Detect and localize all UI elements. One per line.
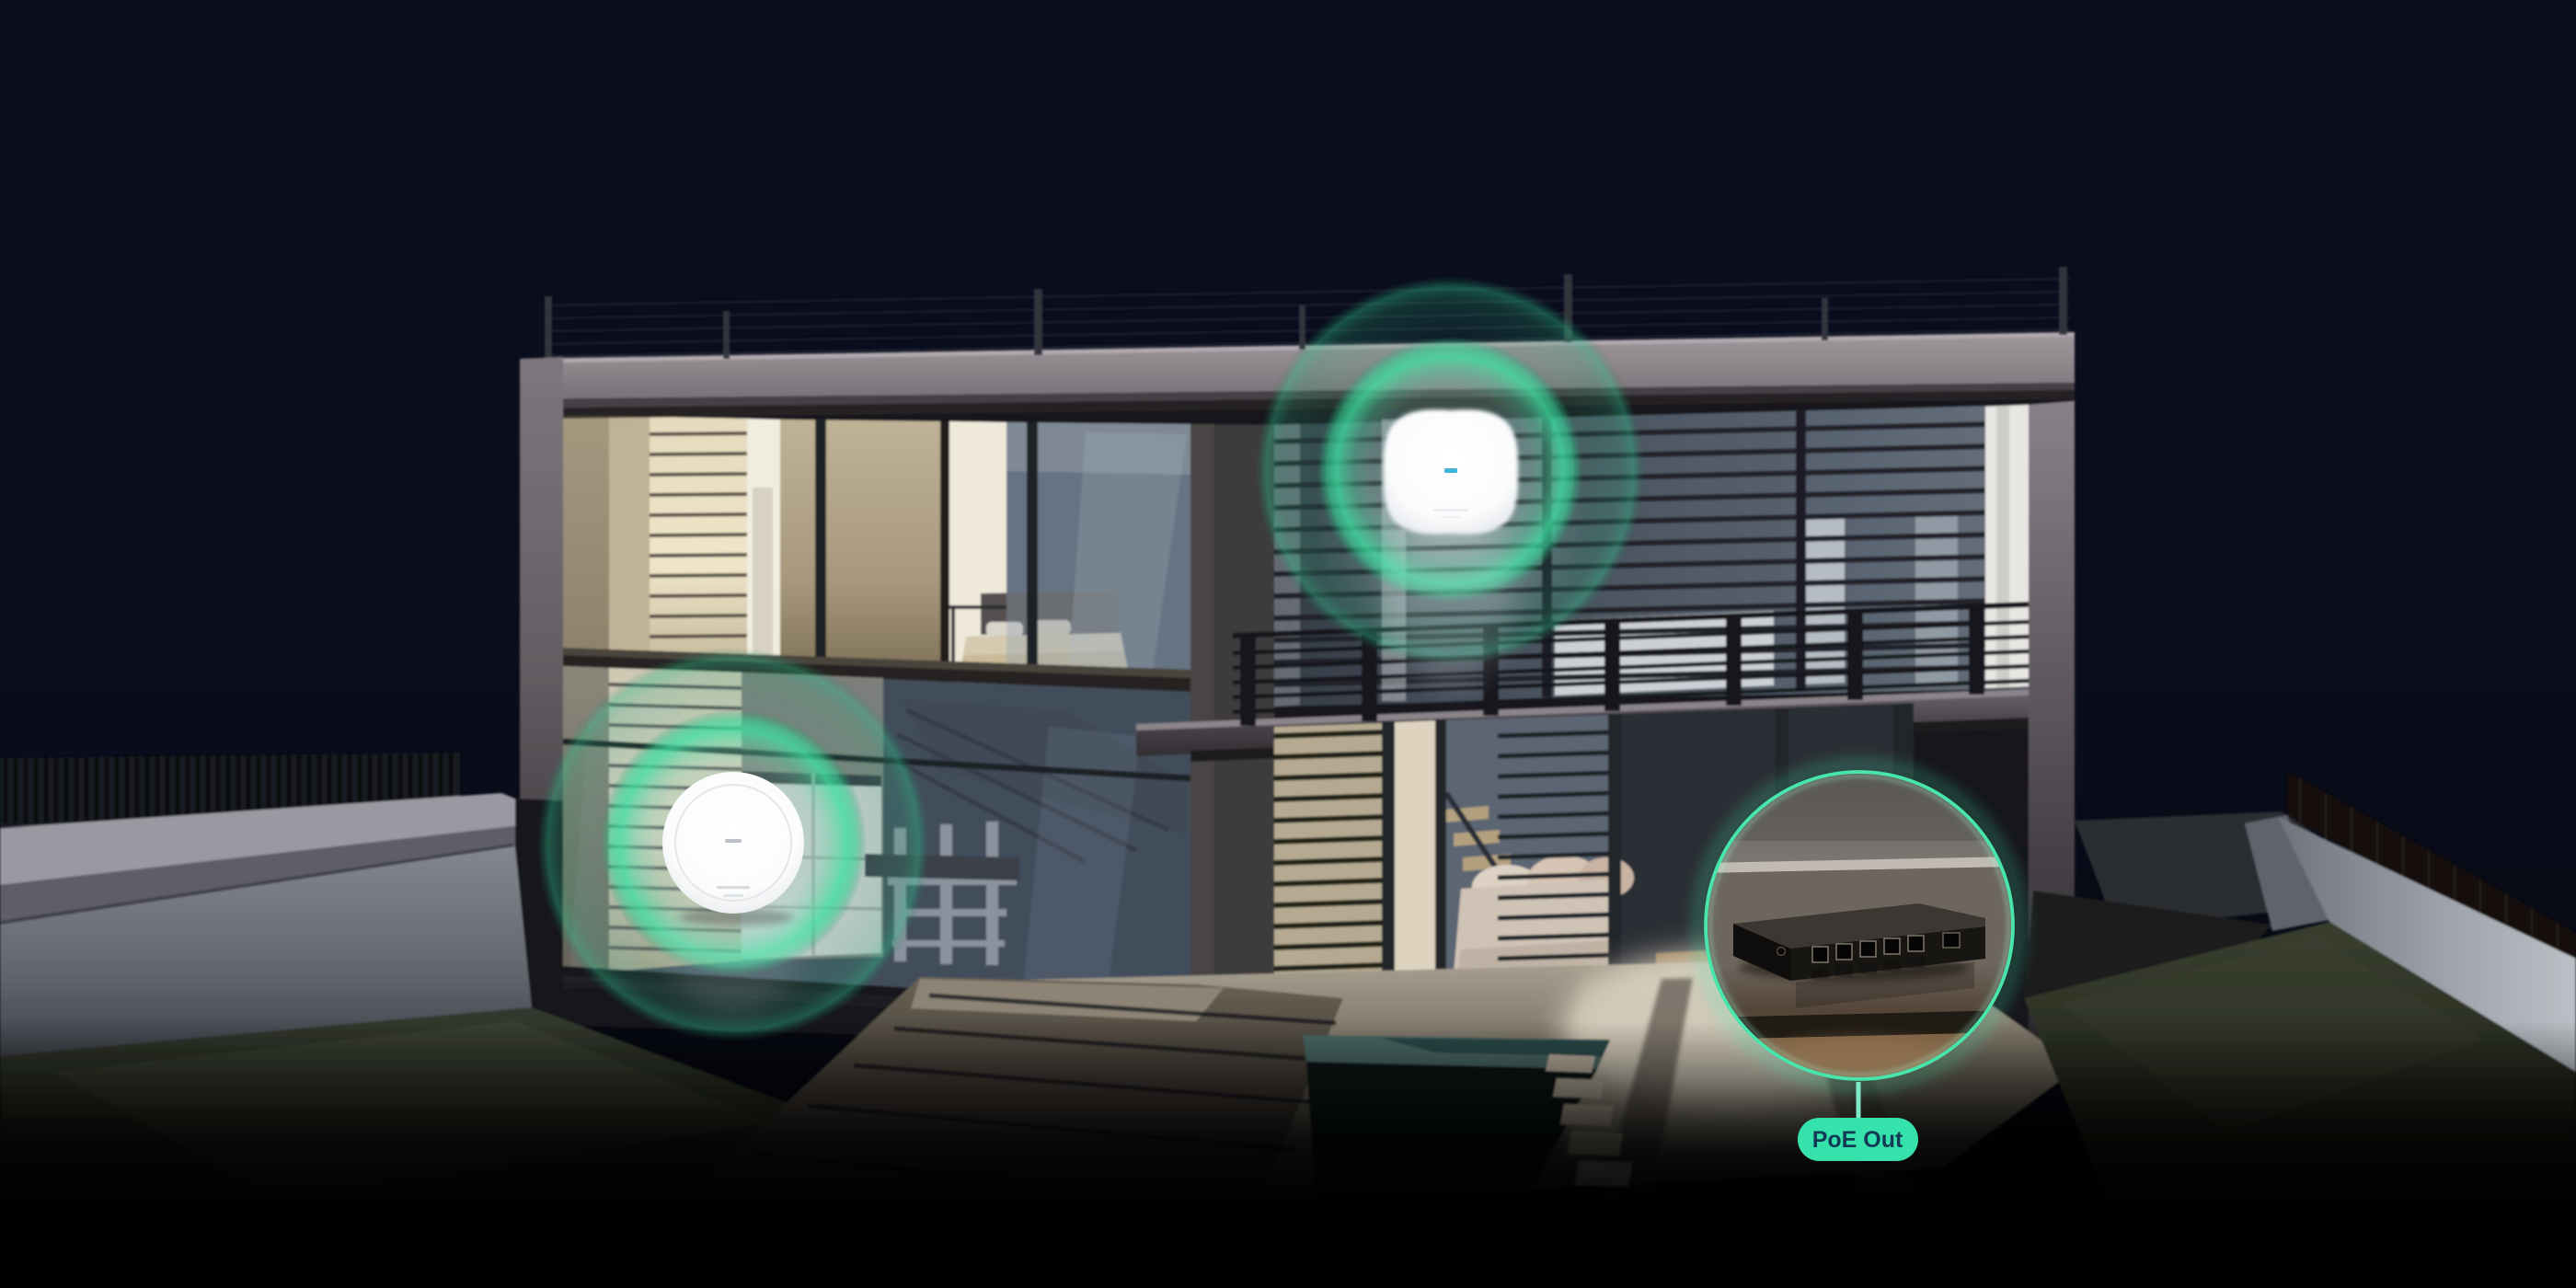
svg-text:PoE Out: PoE Out bbox=[1812, 1127, 1903, 1153]
